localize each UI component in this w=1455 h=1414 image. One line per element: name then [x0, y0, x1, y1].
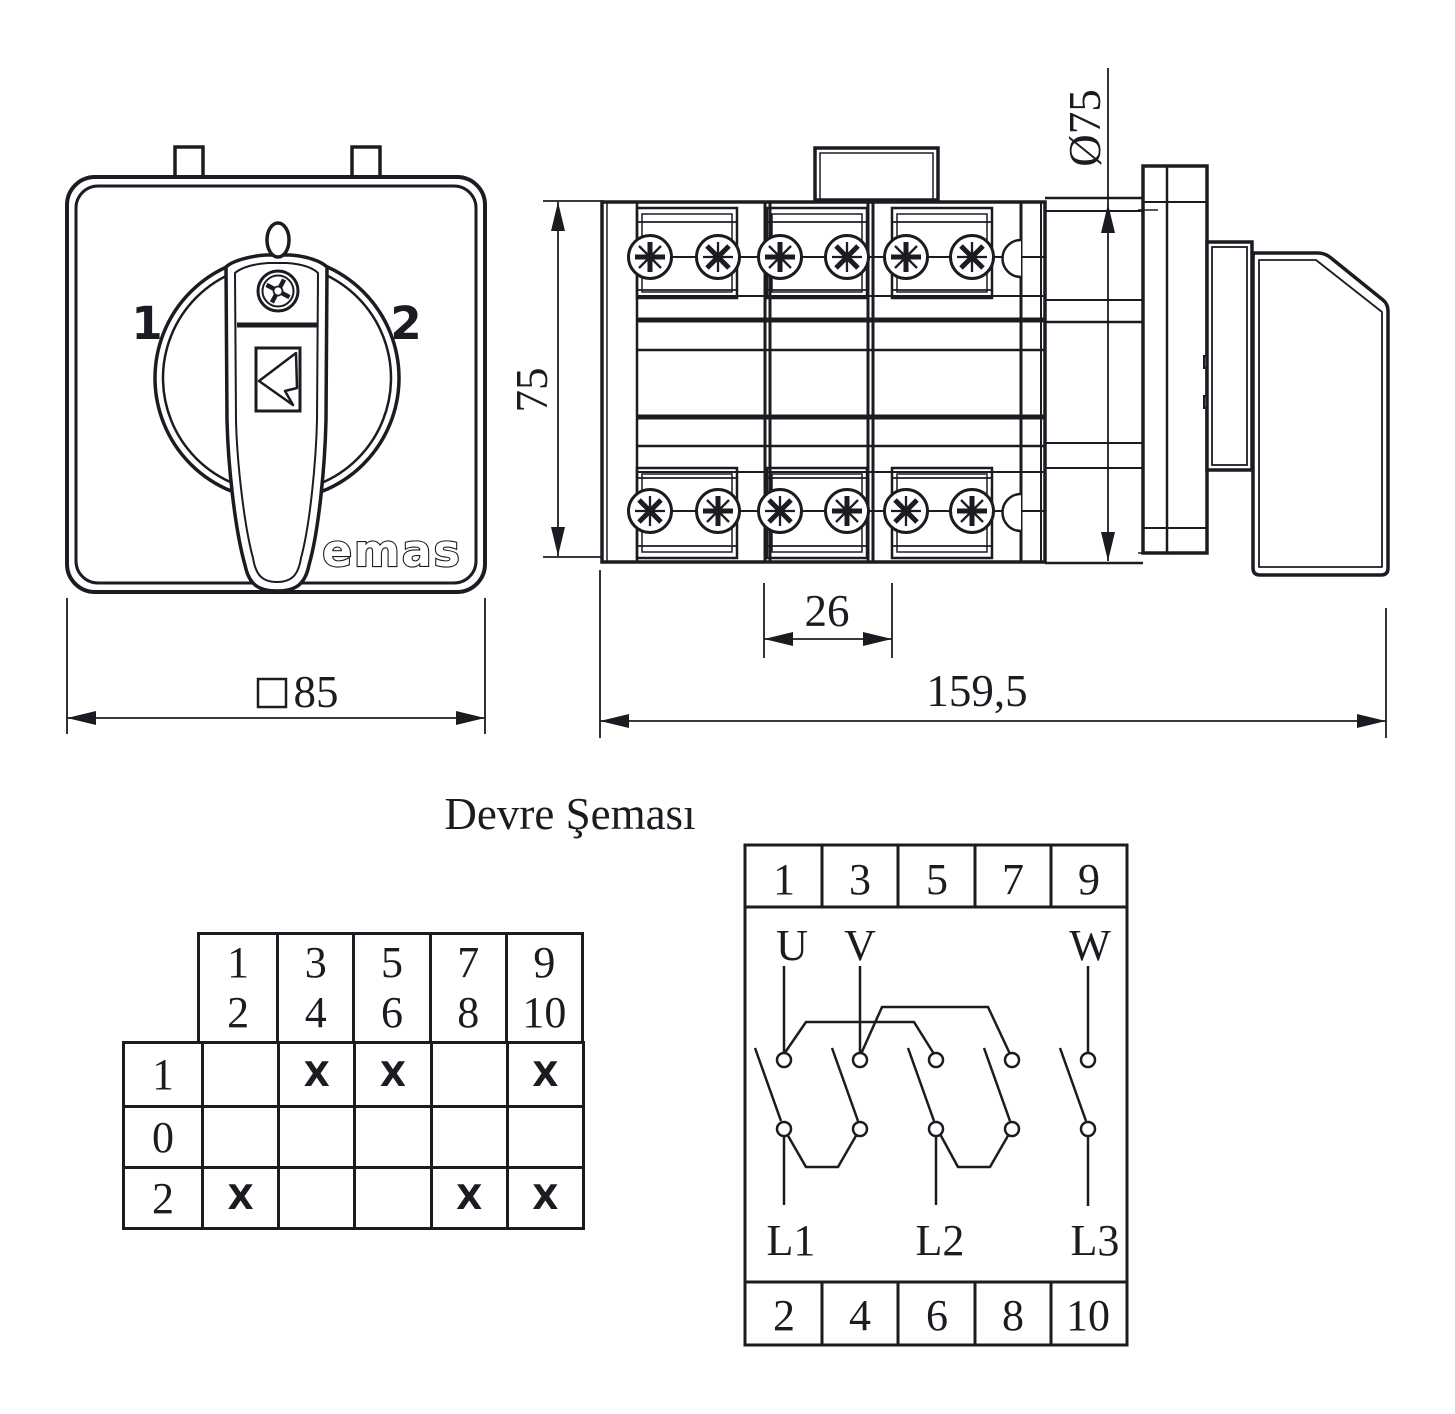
dimension-height-75: 75: [507, 201, 604, 557]
table-cell: [353, 1166, 429, 1227]
dim-height-text: 75: [507, 368, 557, 413]
front-plate: [1143, 166, 1207, 553]
row-label: 0: [125, 1105, 201, 1166]
table-cell: [506, 1105, 582, 1166]
terminal-label: 1: [773, 855, 795, 904]
shaft-rails: [1045, 198, 1143, 563]
position-label-2: 2: [390, 297, 421, 350]
terminal-label: 4: [849, 1291, 871, 1340]
table-col-header: 910: [505, 935, 581, 1041]
phase-label-U: U: [776, 921, 808, 970]
contact-table-body: 1 X X X 0 2 X X X: [122, 1041, 585, 1230]
dimension-pitch-26: 26: [764, 583, 892, 658]
terminal-label: 3: [849, 855, 871, 904]
table-cell: [201, 1044, 277, 1105]
table-cell: X: [201, 1166, 277, 1227]
terminal-label: 8: [1002, 1291, 1024, 1340]
table-col-header: 34: [276, 935, 352, 1041]
circuit-wires: [755, 966, 1088, 1206]
terminal-label: 5: [926, 855, 948, 904]
dim-pitch-text: 26: [805, 586, 850, 636]
table-cell: [430, 1044, 506, 1105]
phase-label-V: V: [844, 921, 876, 970]
dim-diameter-text: Ø75: [1060, 89, 1110, 167]
side-view: 75: [520, 55, 1410, 765]
dim-width-text: 85: [294, 667, 339, 717]
table-col-header: 56: [352, 935, 428, 1041]
front-view: 1 2 emas 85: [40, 130, 550, 780]
circuit-diagram: 1 3 5 7 9 U V W: [740, 840, 1140, 1355]
seal-loop: [267, 223, 289, 257]
dimension-width-85: 85: [67, 598, 485, 734]
line-label-L1: L1: [767, 1216, 816, 1265]
drawing-sheet: 1 2 emas 85 75: [0, 0, 1455, 1414]
table-cell: X: [506, 1166, 582, 1227]
table-cell: [353, 1105, 429, 1166]
terminal-label: 7: [1002, 855, 1024, 904]
body-top-tab: [815, 148, 938, 200]
table-cell: [430, 1105, 506, 1166]
row-label: 1: [125, 1044, 201, 1105]
table-col-header: 12: [200, 935, 276, 1041]
table-cell: [277, 1166, 353, 1227]
square-symbol-icon: [258, 679, 286, 707]
table-cell: X: [353, 1044, 429, 1105]
terminal-label: 10: [1066, 1291, 1110, 1340]
section-title: Devre Şeması: [420, 788, 720, 840]
position-label-1: 1: [131, 297, 162, 350]
table-cell: X: [430, 1166, 506, 1227]
table-cell: X: [506, 1044, 582, 1105]
mounting-tab-left: [175, 147, 203, 179]
line-label-L3: L3: [1071, 1216, 1120, 1265]
contact-points: [777, 1053, 1095, 1136]
terminal-label: 2: [773, 1291, 795, 1340]
terminal-label: 9: [1078, 855, 1100, 904]
dimension-length-159-5: 159,5: [600, 570, 1386, 738]
brand-logo: emas: [322, 526, 462, 577]
contact-table-header: 12 34 56 78 910: [197, 932, 584, 1044]
table-cell: [201, 1105, 277, 1166]
strip-dividers: [822, 845, 1051, 1345]
circuit-frame: [745, 845, 1127, 1345]
handle-neck: [1207, 242, 1252, 470]
row-label: 2: [125, 1166, 201, 1227]
table-col-header: 78: [429, 935, 505, 1041]
mounting-tab-right: [352, 147, 380, 179]
table-cell: X: [277, 1044, 353, 1105]
table-cell: [277, 1105, 353, 1166]
terminal-label: 6: [926, 1291, 948, 1340]
line-label-L2: L2: [916, 1216, 965, 1265]
dim-length-text: 159,5: [926, 666, 1027, 716]
phase-label-W: W: [1069, 921, 1111, 970]
